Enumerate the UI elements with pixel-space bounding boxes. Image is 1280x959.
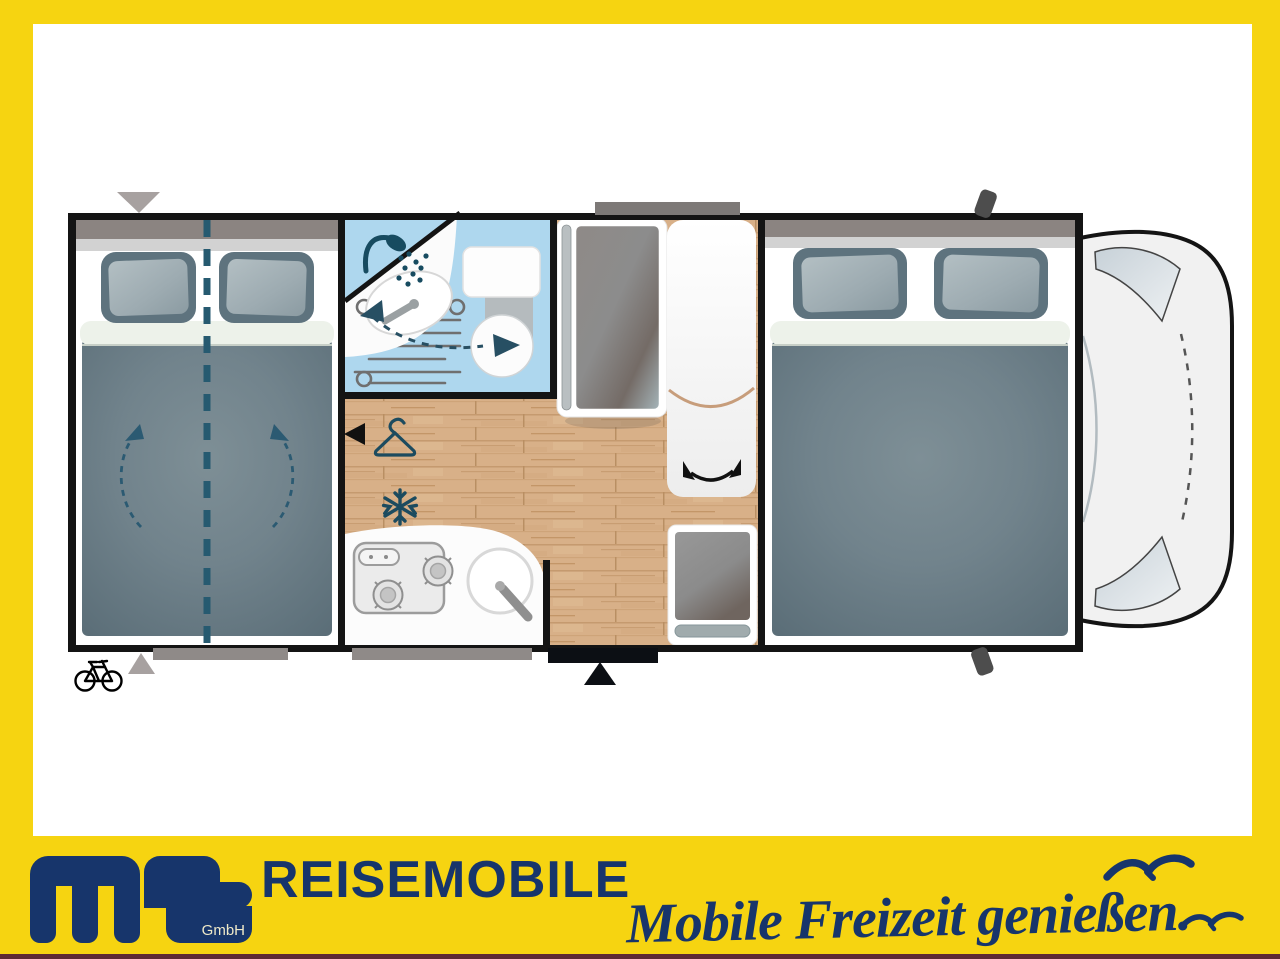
rear-bed-pillow <box>219 252 314 323</box>
logo-gmbh-label: GmbH <box>202 922 245 939</box>
wall-bathroom-bottom <box>345 392 557 399</box>
ms-logo-m <box>30 856 140 943</box>
window-marker-kitchen <box>352 648 532 660</box>
front-bed-sheet <box>770 321 1070 346</box>
wall-cab-bulkhead <box>1075 213 1083 652</box>
front-headboard-shelf <box>765 237 1075 248</box>
window-marker-triangle-bottom <box>128 653 155 674</box>
window-marker-rear <box>153 648 288 660</box>
wall-bedroom-divider <box>338 213 345 652</box>
logo-s-middle <box>144 882 252 908</box>
logo-m-leg <box>30 884 56 943</box>
window-marker-triangle-top <box>117 192 160 213</box>
logo-s-bottom: GmbH <box>166 906 252 943</box>
wardrobe <box>667 220 756 497</box>
company-name: REISEMOBILE <box>261 850 630 910</box>
fridge-door-hinge <box>562 225 571 410</box>
floorplan-canvas <box>33 24 1252 836</box>
front-window-band <box>765 220 1075 237</box>
wall-rear <box>68 213 76 652</box>
wall-top <box>68 213 1083 220</box>
wall-front-bed-divider <box>758 213 765 652</box>
seagull-icon-small <box>1180 907 1244 937</box>
basin-drain <box>409 299 419 309</box>
entry-door-marker <box>584 662 616 685</box>
slogan-text: Mobile Freizeit genießen. <box>625 880 1191 957</box>
bathroom <box>345 213 550 392</box>
front-bed-pillow <box>793 248 907 319</box>
fridge-door <box>575 225 660 410</box>
rear-double-bed <box>76 220 338 650</box>
logo-m-bar <box>30 856 140 886</box>
bike-rack-icon <box>76 661 122 691</box>
roof-vent-bar <box>595 202 740 215</box>
seagull-icon-large <box>1103 849 1195 889</box>
front-bed-pillow <box>934 248 1048 319</box>
hob-icon <box>354 543 453 613</box>
burner <box>374 581 403 610</box>
fridge <box>557 218 667 429</box>
entry-door <box>548 648 658 663</box>
kitchen <box>345 525 545 645</box>
ms-logo-s: GmbH <box>144 856 252 943</box>
logo-m-leg <box>114 884 140 943</box>
floorplan <box>33 24 1252 836</box>
entry-cabinet <box>668 525 757 645</box>
rear-bed-pillow <box>101 252 196 323</box>
wall-kitchen-right <box>543 560 550 652</box>
front-bed-blanket <box>772 340 1068 636</box>
burner <box>424 557 453 586</box>
cabinet-step-bar <box>675 625 750 637</box>
logo-s-top <box>144 856 220 884</box>
footer-rule <box>0 954 1280 959</box>
logo-m-leg <box>72 884 98 943</box>
page-frame: GmbH REISEMOBILE Mobile Freizeit genieße… <box>0 0 1280 959</box>
driver-cab <box>1080 232 1232 626</box>
wall-bathroom-right <box>550 213 557 399</box>
